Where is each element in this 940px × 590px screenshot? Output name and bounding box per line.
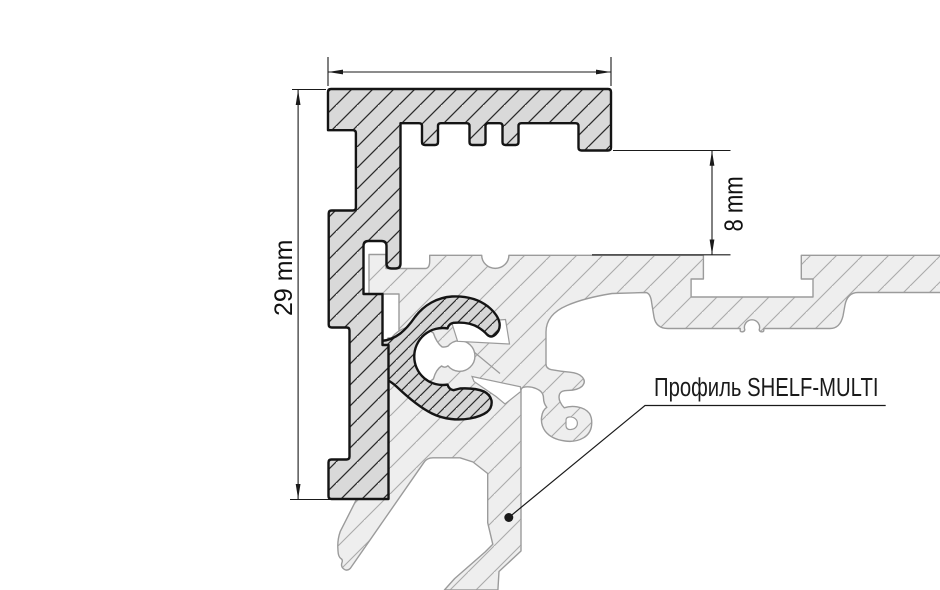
svg-text:Профиль SHELF-MULTI: Профиль SHELF-MULTI (654, 373, 878, 402)
svg-text:8 mm: 8 mm (720, 176, 749, 231)
svg-text:29 mm: 29 mm (270, 240, 298, 316)
